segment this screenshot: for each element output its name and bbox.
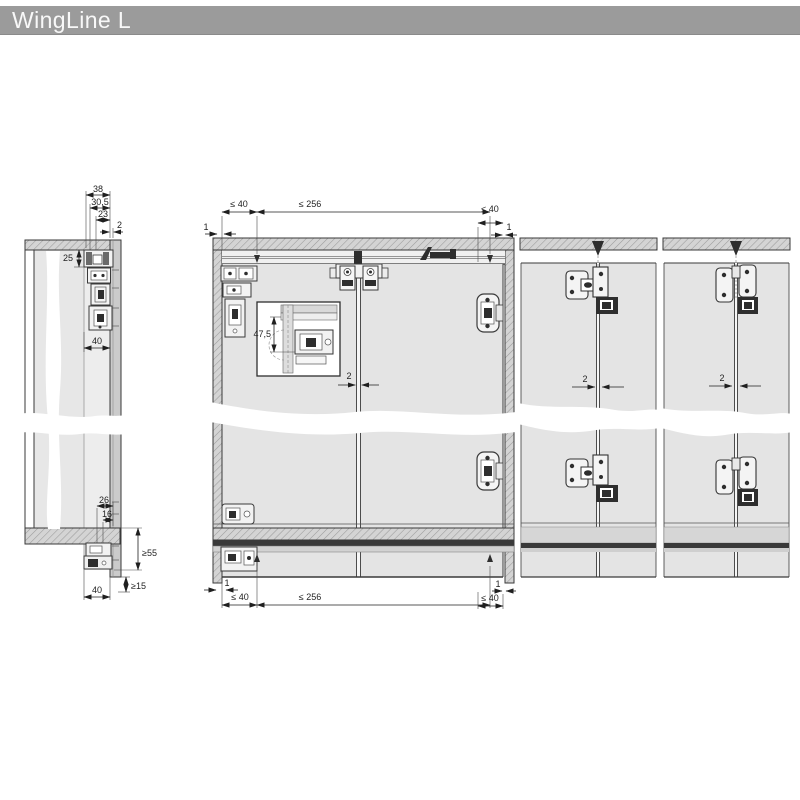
- door-pair-flap-hinge-view: 2: [661, 238, 792, 577]
- dim-offset-bottom-left: ≤ 40: [231, 592, 248, 602]
- front-view: 47,5 2: [203, 199, 517, 609]
- page: WingLine L: [0, 0, 800, 800]
- bottom-left-pivot: [222, 504, 254, 524]
- bottom-track-2: [521, 523, 656, 552]
- back-panel: [25, 250, 34, 540]
- dim-40-top: 40: [92, 336, 102, 346]
- dim-23: 23: [98, 209, 108, 219]
- cabinet-bottom-panel-section: [25, 528, 120, 544]
- dim-16: 16: [102, 509, 112, 519]
- top-panel-edge: [213, 238, 514, 250]
- dim-25: 25: [63, 253, 73, 263]
- cabinet-top-panel-section: [25, 240, 120, 250]
- detail-inset: 47,5: [253, 302, 340, 376]
- hinge-bottom-right: [477, 452, 503, 490]
- dim-min-15: ≥15: [131, 581, 146, 591]
- bottom-guide-section: [84, 543, 112, 569]
- dim-gap-top-right: 1: [506, 222, 511, 232]
- dim-spacing-top: ≤ 256: [299, 199, 321, 209]
- dim-min-55: ≥55: [142, 548, 157, 558]
- dim-joint-gap: 2: [346, 371, 351, 381]
- dim-joint-gap-3: 2: [719, 373, 724, 383]
- hinge-top-right: [477, 294, 503, 332]
- dim-offset-top-left: ≤ 40: [230, 199, 247, 209]
- dim-38: 38: [93, 184, 103, 194]
- bottom-track-3: [664, 523, 789, 552]
- door-panel-section: [110, 240, 121, 577]
- break-band-vertical: [46, 251, 61, 529]
- dim-26: 26: [99, 495, 109, 505]
- dim-2: 2: [117, 220, 122, 230]
- dim-30-5: 30,5: [91, 197, 109, 207]
- dim-offset-bottom-right: ≤ 40: [481, 593, 498, 603]
- dim-spacing-bottom: ≤ 256: [299, 592, 321, 602]
- bottom-track: [213, 524, 514, 552]
- top-running-track: [222, 250, 505, 264]
- dim-47-5: 47,5: [253, 329, 271, 339]
- top-panel-edge-2: [520, 238, 657, 250]
- dim-offset-top-right: ≤ 40: [481, 204, 498, 214]
- top-panel-edge-3: [663, 238, 790, 250]
- dim-joint-gap-2: 2: [582, 374, 587, 384]
- door-pair-cross-hinge-view: 2: [518, 238, 659, 577]
- technical-drawing: 38 30,5 23 2 25 40: [0, 0, 800, 800]
- dim-gap-bottom-right: 1: [495, 579, 500, 589]
- dim-gap-bottom-left: 1: [224, 578, 229, 588]
- side-section-view: 38 30,5 23 2 25 40: [18, 184, 157, 600]
- dim-gap-top-left: 1: [203, 222, 208, 232]
- dim-40-bottom: 40: [92, 585, 102, 595]
- bottom-left-guide: [221, 547, 257, 571]
